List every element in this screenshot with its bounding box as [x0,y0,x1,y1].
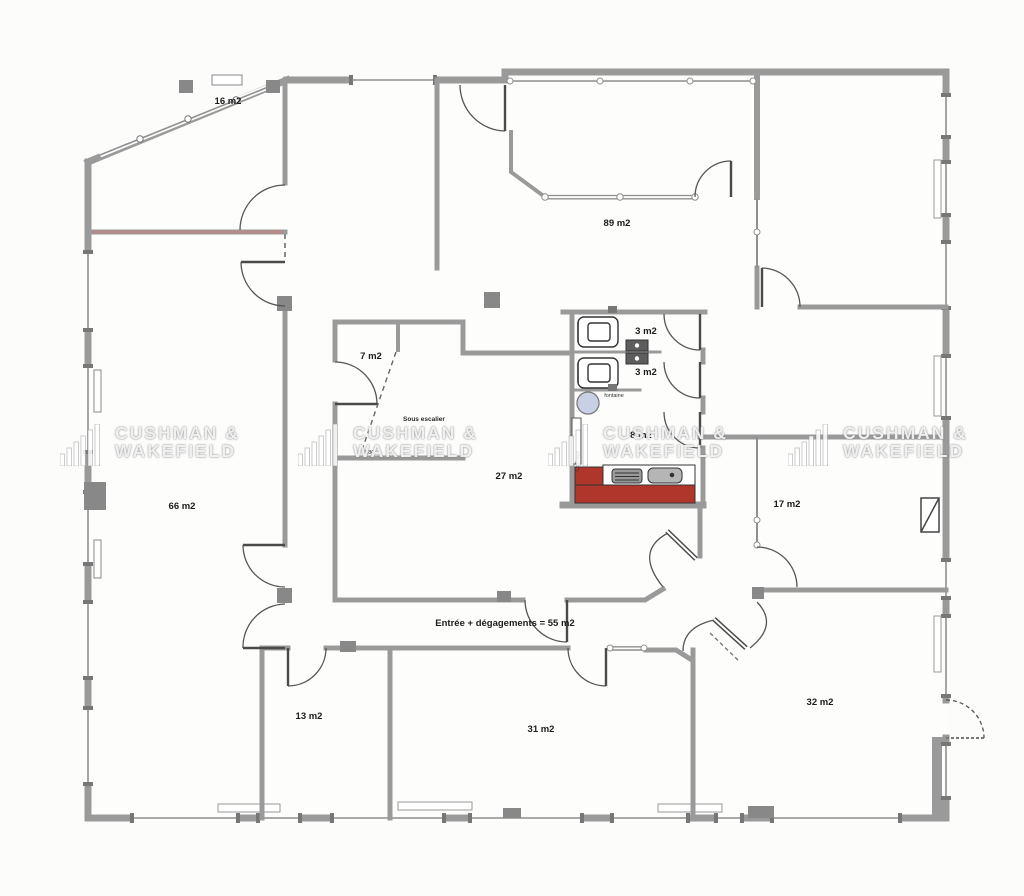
dim-label: 1,80 [364,450,375,456]
wc-1-icon [578,317,618,347]
room-label-3b: 3 m2 [635,367,657,378]
radiator [94,370,101,412]
wc-2-icon [578,358,618,388]
sous-escalier-label: Sous escalier [403,416,445,423]
room-label-66: 66 m2 [169,501,196,512]
room-label-7: 7 m2 [360,351,382,362]
room-label-13: 13 m2 [296,711,323,722]
room-label-17: 17 m2 [774,499,801,510]
fontaine-label: fontaine [604,393,624,399]
fountain-icon [577,392,599,414]
radiator [94,540,101,578]
room-label-27: 27 m2 [496,471,523,482]
exit-door-dashed-arc [946,700,984,738]
room-label-89: 89 m2 [604,218,631,229]
electrical-panel-icon [921,498,939,532]
room-label-31: 31 m2 [528,724,555,735]
coffrage-label: Coffrage [575,451,581,472]
floor-plan-drawing: 16 m2 89 m2 7 m2 Sous escalier 3 m2 3 m2… [0,0,1024,896]
room-label-3a: 3 m2 [635,326,657,337]
room-label-32: 32 m2 [807,697,834,708]
room-label-8: 8 m2 [630,430,652,441]
room-label-16: 16 m2 [215,96,242,107]
entree-label: Entrée + dégagements = 55 m2 [435,618,574,629]
floor-plan-page: 16 m2 89 m2 7 m2 Sous escalier 3 m2 3 m2… [0,0,1024,896]
